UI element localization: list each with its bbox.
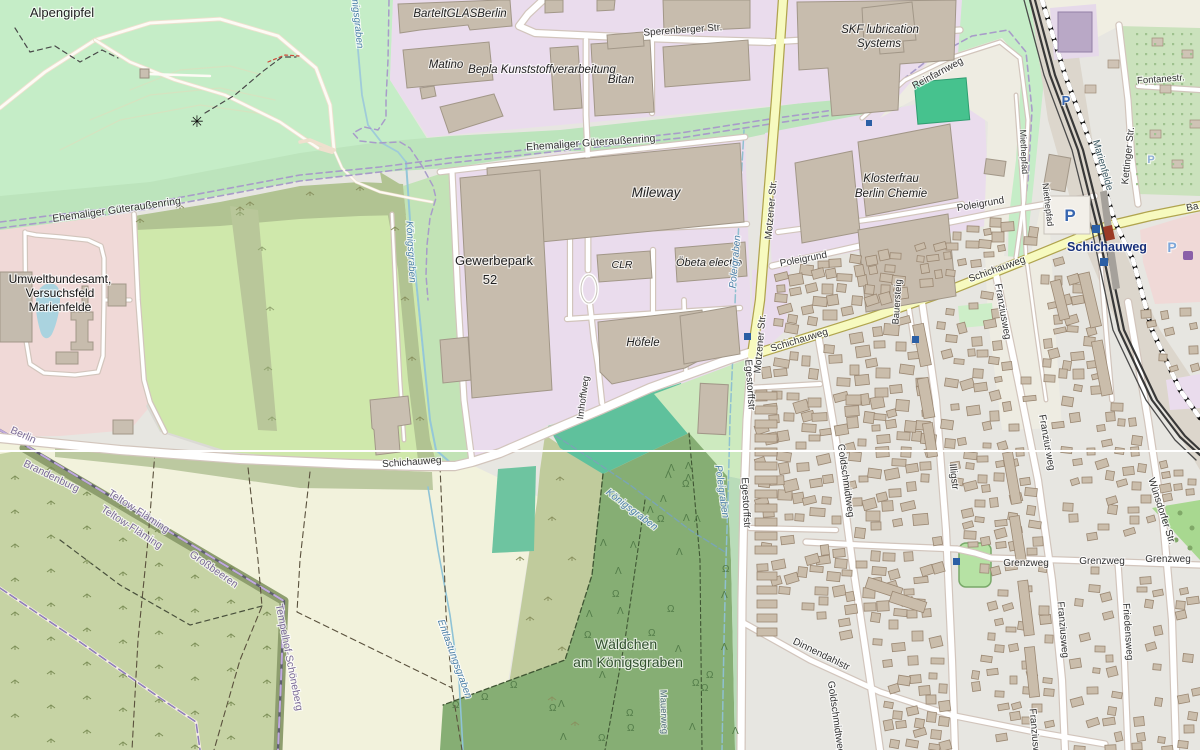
svg-text:Λ: Λ — [630, 540, 637, 551]
svg-text:Gewerbepark: Gewerbepark — [455, 253, 534, 268]
svg-text:Λ: Λ — [721, 642, 728, 653]
svg-text:Λ: Λ — [600, 538, 607, 549]
svg-text:P: P — [1147, 154, 1154, 166]
svg-text:Grenzweg: Grenzweg — [1003, 558, 1049, 569]
svg-text:Grenzweg: Grenzweg — [1145, 554, 1191, 565]
svg-text:Ω: Ω — [481, 692, 489, 703]
svg-text:Λ: Λ — [685, 473, 692, 484]
svg-text:Λ: Λ — [558, 699, 565, 710]
svg-text:am Königsgraben: am Königsgraben — [573, 654, 683, 670]
svg-text:Matino: Matino — [429, 59, 464, 71]
svg-text:Ω: Ω — [667, 604, 675, 615]
svg-text:Λ: Λ — [676, 547, 683, 558]
svg-text:Mauerweg: Mauerweg — [657, 690, 670, 735]
svg-text:Ω: Ω — [706, 670, 714, 681]
svg-text:Ω: Ω — [722, 564, 730, 575]
svg-text:BarteltGLASBerlin: BarteltGLASBerlin — [413, 8, 506, 20]
svg-text:SKF lubrication: SKF lubrication — [841, 24, 919, 36]
svg-text:P: P — [1167, 239, 1176, 255]
svg-text:Alpengipfel: Alpengipfel — [30, 5, 94, 20]
svg-text:Λ: Λ — [683, 513, 690, 524]
svg-text:Λ: Λ — [599, 670, 606, 681]
svg-text:Ω: Ω — [612, 589, 620, 600]
svg-text:Λ: Λ — [560, 732, 567, 743]
svg-text:Ω: Ω — [598, 733, 606, 744]
svg-text:Systems: Systems — [857, 38, 901, 50]
svg-text:Versuchsfeld: Versuchsfeld — [26, 286, 95, 300]
svg-text:Λ: Λ — [721, 590, 728, 601]
svg-text:Ω: Ω — [549, 703, 557, 714]
svg-text:Klosterfrau: Klosterfrau — [863, 173, 919, 185]
svg-text:Mileway: Mileway — [632, 185, 682, 200]
svg-text:Λ: Λ — [732, 726, 739, 737]
svg-text:P: P — [1064, 206, 1075, 225]
svg-text:CLR: CLR — [611, 259, 632, 271]
svg-text:Ω: Ω — [701, 683, 709, 694]
svg-text:Λ: Λ — [586, 609, 593, 620]
svg-text:✳: ✳ — [190, 114, 203, 131]
svg-text:52: 52 — [483, 272, 497, 287]
svg-text:Marienfelde: Marienfelde — [29, 300, 92, 314]
svg-text:Schichauweg: Schichauweg — [1067, 240, 1147, 254]
svg-text:Λ: Λ — [689, 722, 696, 733]
svg-text:Λ: Λ — [615, 566, 622, 577]
svg-text:Ω: Ω — [452, 700, 460, 711]
svg-text:Umweltbundesamt,: Umweltbundesamt, — [9, 272, 112, 286]
svg-text:P: P — [1062, 93, 1071, 108]
svg-text:Λ: Λ — [668, 463, 675, 474]
svg-text:Λ: Λ — [685, 461, 692, 472]
svg-text:Λ: Λ — [647, 505, 654, 516]
svg-text:Ω: Ω — [627, 723, 635, 734]
svg-text:Λ: Λ — [617, 606, 624, 617]
svg-text:Λ: Λ — [694, 514, 701, 525]
svg-text:Ω: Ω — [692, 678, 700, 689]
svg-text:Bepla Kunststoffverarbeitung: Bepla Kunststoffverarbeitung — [468, 64, 616, 76]
svg-text:Ω: Ω — [626, 708, 634, 719]
svg-text:Grenzweg: Grenzweg — [1079, 556, 1125, 567]
svg-text:Bitan: Bitan — [608, 74, 634, 86]
svg-text:Ω: Ω — [510, 680, 518, 691]
svg-text:Ω: Ω — [584, 630, 592, 641]
svg-text:Höfele: Höfele — [626, 337, 659, 349]
svg-text:Wäldchen: Wäldchen — [595, 636, 657, 652]
svg-text:Berlin Chemie: Berlin Chemie — [855, 188, 927, 200]
svg-text:Λ: Λ — [660, 494, 667, 505]
